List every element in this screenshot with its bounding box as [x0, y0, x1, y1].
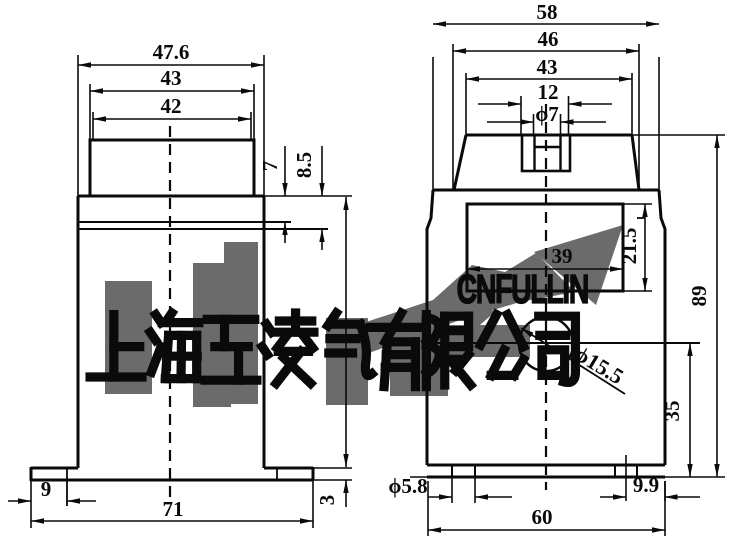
svg-text:46: 46 [538, 27, 559, 51]
svg-text:12: 12 [538, 80, 559, 104]
svg-text:CNFULLIN: CNFULLIN [456, 267, 589, 312]
svg-text:9: 9 [41, 477, 52, 501]
svg-text:60: 60 [532, 505, 553, 529]
svg-text:89: 89 [687, 286, 711, 307]
svg-text:8.5: 8.5 [292, 152, 316, 178]
svg-text:35: 35 [660, 401, 684, 422]
svg-text:9.9: 9.9 [633, 473, 659, 497]
svg-text:71: 71 [163, 497, 184, 521]
svg-text:42: 42 [161, 94, 182, 118]
svg-text:39: 39 [552, 244, 573, 268]
svg-text:ϕ7: ϕ7 [535, 102, 559, 126]
svg-text:47.6: 47.6 [153, 40, 190, 64]
svg-text:43: 43 [537, 55, 558, 79]
svg-text:58: 58 [537, 0, 558, 24]
svg-text:ϕ5.8: ϕ5.8 [388, 474, 427, 498]
svg-text:7: 7 [258, 161, 282, 172]
svg-text:3: 3 [315, 495, 339, 506]
svg-text:21.5: 21.5 [617, 228, 641, 265]
svg-text:43: 43 [161, 66, 182, 90]
